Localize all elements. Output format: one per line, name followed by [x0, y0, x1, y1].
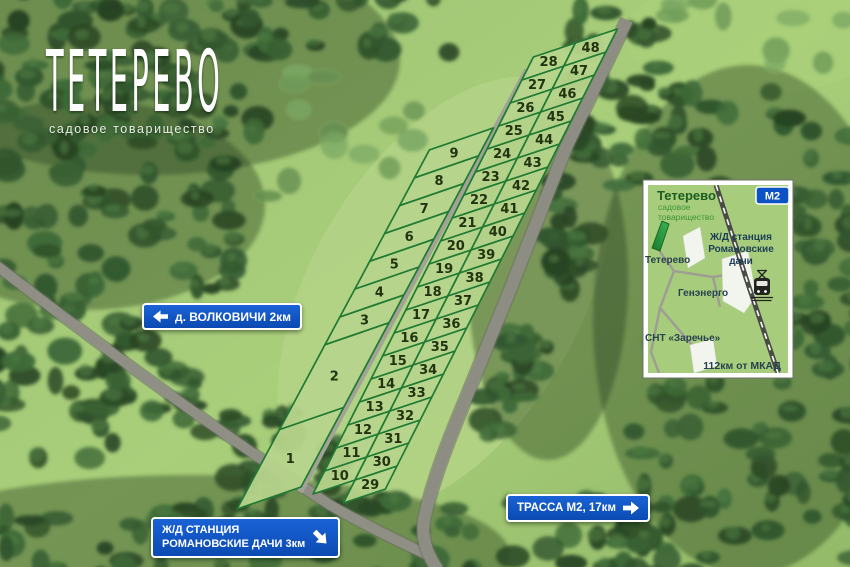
- plot-number: 33: [408, 386, 426, 401]
- plot-number: 2: [330, 370, 339, 385]
- plot-number: 17: [412, 308, 430, 323]
- plot-number: 1: [286, 452, 295, 467]
- plot-number: 6: [405, 230, 414, 245]
- plot-number: 13: [366, 400, 384, 415]
- inset-station-line1: Ж/Д станция: [709, 232, 772, 243]
- road-sign-volkovichi: д. ВОЛКОВИЧИ 2км: [142, 303, 302, 330]
- inset-station-line3: дачи: [729, 256, 753, 267]
- plot-number: 24: [493, 147, 511, 162]
- plot-number: 35: [431, 340, 449, 355]
- inset-snt-label: СНТ «Заречье»: [645, 333, 721, 344]
- plot-number: 9: [449, 146, 458, 161]
- right-arrow-icon: [623, 500, 639, 516]
- inset-station-line2: Романовские: [708, 244, 774, 255]
- plot-number: 37: [454, 294, 472, 309]
- plot-number: 32: [396, 409, 414, 424]
- plot-number: 8: [434, 174, 443, 189]
- sign-volkovichi-text: д. ВОЛКОВИЧИ 2км: [175, 310, 291, 324]
- plot-number: 48: [582, 41, 600, 56]
- road-sign-station: Ж/Д СТАНЦИЯ РОМАНОВСКИЕ ДАЧИ 3км: [151, 517, 340, 558]
- plot-number: 11: [342, 446, 360, 461]
- plot-number: 31: [384, 432, 402, 447]
- plot-number: 7: [420, 202, 429, 217]
- map-canvas: 1011121314151617181920212223242526272829…: [0, 0, 850, 567]
- plot-number: 3: [360, 313, 369, 328]
- inset-subtitle-1: садовое: [658, 202, 691, 212]
- plot-number: 45: [547, 110, 565, 125]
- plot-number: 23: [482, 170, 500, 185]
- plot-number: 12: [354, 423, 372, 438]
- inset-title: Тетерево: [657, 188, 716, 203]
- plot-number: 25: [505, 124, 523, 139]
- plot-number: 14: [377, 377, 395, 392]
- plot-number: 26: [516, 101, 534, 116]
- inset-map: М2 Тетерево садовое товарищество Ж/Д ста…: [643, 180, 793, 378]
- plot-number: 18: [424, 285, 442, 300]
- plot-number: 29: [361, 478, 379, 493]
- plot-number: 5: [390, 258, 399, 273]
- plot-number: 27: [528, 78, 546, 93]
- plot-number: 16: [400, 331, 418, 346]
- plot-number: 10: [331, 469, 349, 484]
- plot-number: 22: [470, 193, 488, 208]
- plot-number: 43: [524, 156, 542, 171]
- site-map: 1011121314151617181920212223242526272829…: [0, 0, 850, 567]
- plot-number: 30: [373, 455, 391, 470]
- inset-genenergo-label: Генэнерго: [678, 288, 728, 299]
- plot-number: 42: [512, 179, 530, 194]
- plot-number: 4: [375, 286, 384, 301]
- plot-number: 34: [419, 363, 437, 378]
- plot-number: 44: [535, 133, 553, 148]
- sign-station-line2: РОМАНОВСКИЕ ДАЧИ 3км: [162, 537, 305, 551]
- plot-number: 28: [540, 55, 558, 70]
- road-sign-trassa-m2: ТРАССА М2, 17км: [506, 494, 650, 522]
- inset-subtitle-2: товарищество: [658, 212, 714, 222]
- plot-number: 20: [447, 239, 465, 254]
- sign-station-line1: Ж/Д СТАНЦИЯ: [162, 523, 305, 537]
- left-arrow-icon: [153, 309, 168, 324]
- plot-number: 19: [435, 262, 453, 277]
- sign-trassa-text: ТРАССА М2, 17км: [517, 502, 616, 514]
- inset-m2-badge: М2: [756, 187, 789, 204]
- plot-number: 47: [570, 64, 588, 79]
- inset-village-label: Тетерево: [645, 255, 690, 266]
- plot-number: 39: [477, 248, 495, 263]
- down-right-arrow-icon: [309, 525, 333, 549]
- plot-number: 38: [466, 271, 484, 286]
- plot-number: 21: [458, 216, 476, 231]
- plot-number: 36: [442, 317, 460, 332]
- inset-m2-label: М2: [765, 191, 780, 203]
- inset-distance-label: 112км от МКАД: [703, 360, 781, 372]
- plot-number: 40: [489, 225, 507, 240]
- plot-number: 41: [500, 202, 518, 217]
- plot-number: 15: [389, 354, 407, 369]
- plot-number: 46: [558, 87, 576, 102]
